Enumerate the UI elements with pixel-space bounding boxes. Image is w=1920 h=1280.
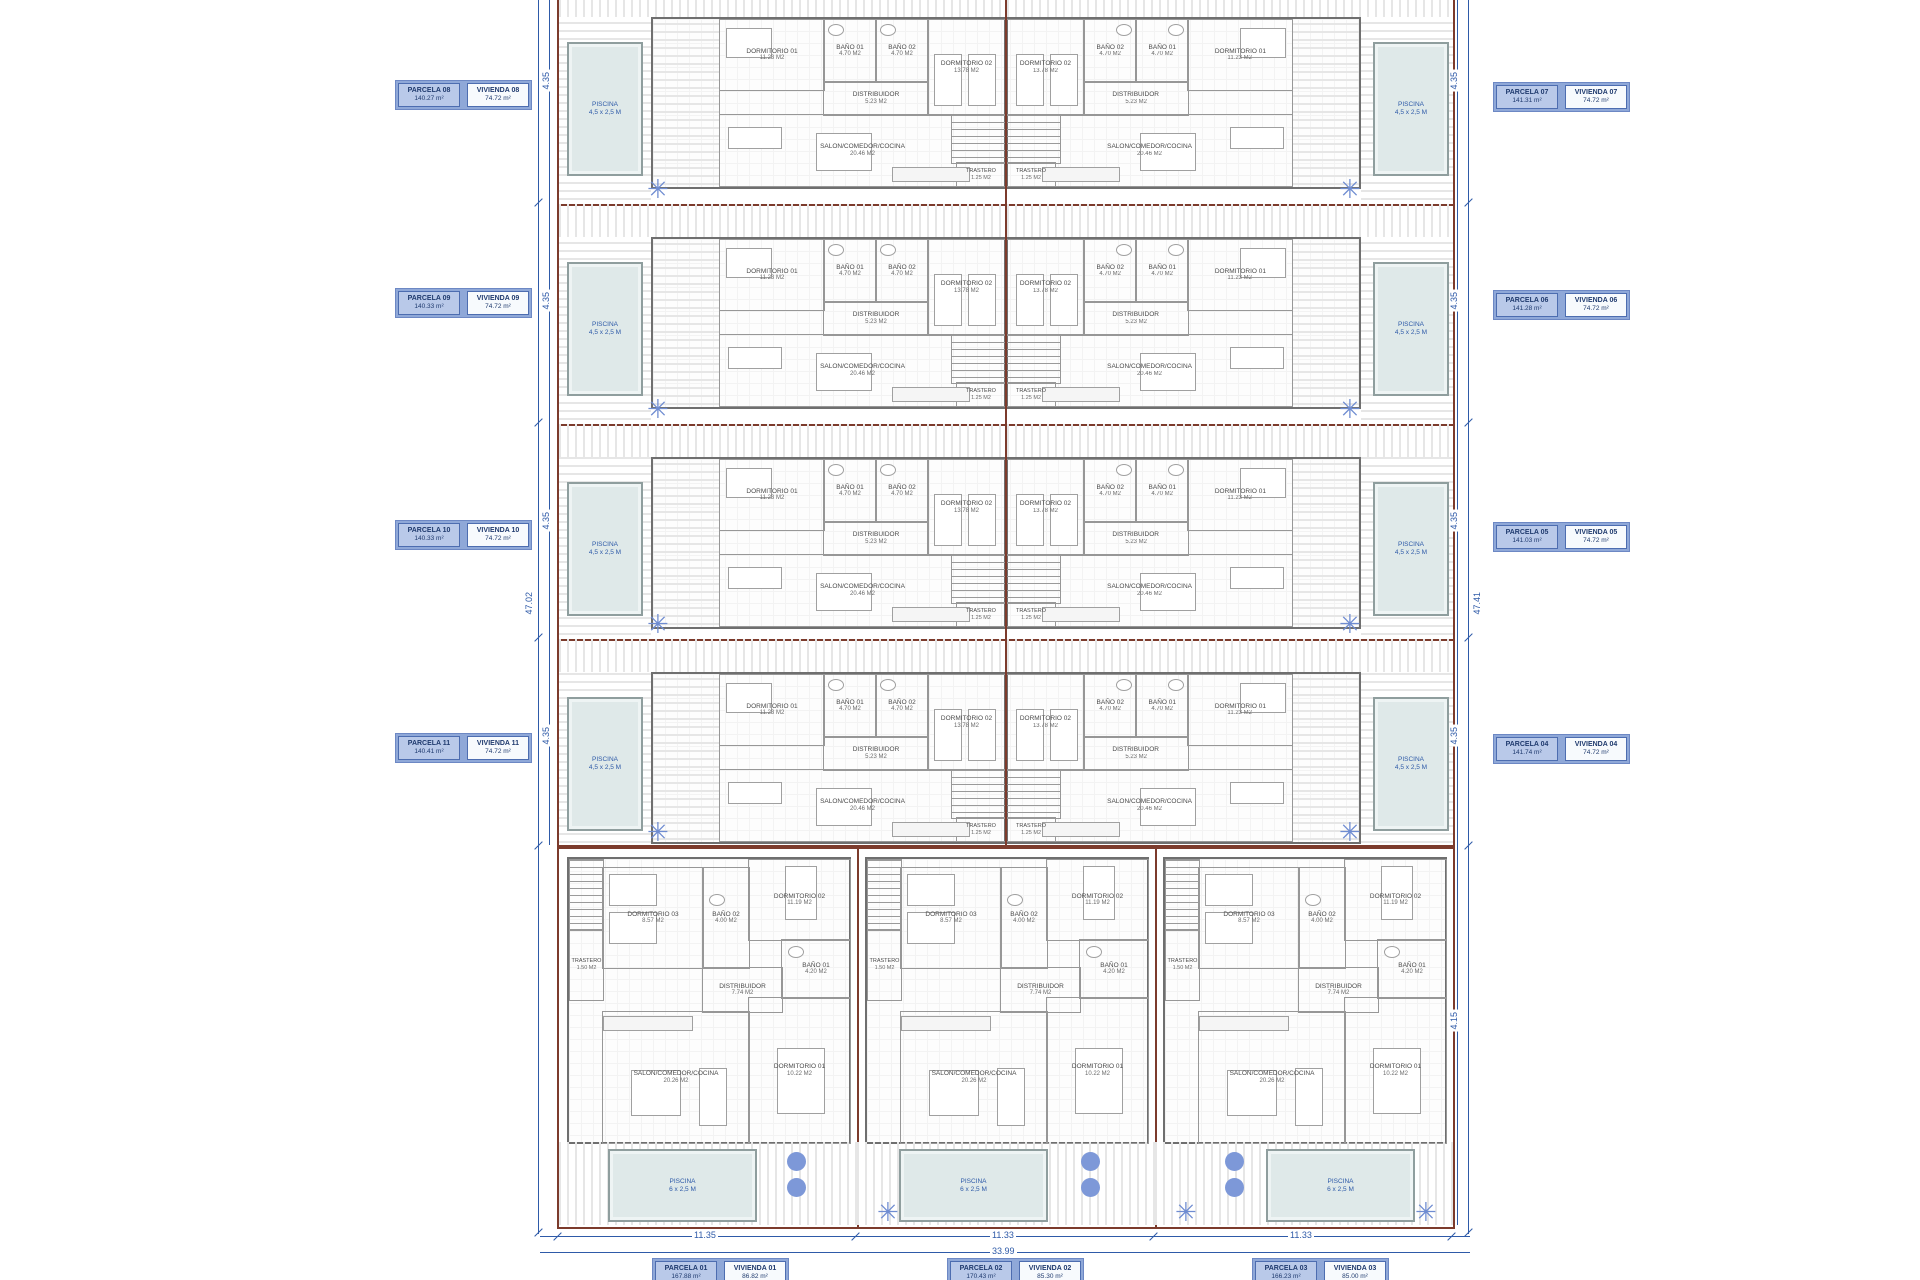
room-area: 4.70 M2 <box>1099 51 1121 58</box>
room-label: BAÑO 01 <box>1148 44 1175 52</box>
room-area: 20.26 M2 <box>663 1078 688 1085</box>
room-trastero: TRASTERO 1.50 M2 <box>569 929 604 1001</box>
room-bano-01: BAÑO 01 4.70 M2 <box>823 19 877 83</box>
room-label: DISTRIBUIDOR <box>853 91 900 99</box>
pool-size-label: 4,5 x 2,5 M <box>1395 329 1427 337</box>
palm-tree-icon: ✳ <box>647 396 669 422</box>
room-area: 20.46 M2 <box>1137 806 1162 813</box>
room-area: 1.25 M2 <box>1021 615 1041 622</box>
parcel-label-pair: PARCELA 04 141.74 m² VIVIENDA 04 74.72 m… <box>1493 734 1630 764</box>
unit-outline: DORMITORIO 01 11.23 M2 BAÑO 01 4.70 M2 B… <box>1006 17 1361 189</box>
room-dormitorio-01: DORMITORIO 01 11.23 M2 <box>719 674 825 746</box>
vivienda-label-box: VIVIENDA 09 74.72 m² <box>467 291 529 315</box>
room-distribuidor: DISTRIBUIDOR 5.23 M2 <box>823 521 929 556</box>
sink-symbol <box>1116 679 1132 691</box>
room-label: TRASTERO <box>1016 823 1046 830</box>
room-label: BAÑO 02 <box>1096 264 1123 272</box>
room-salon-comedor-cocina: SALON/COMEDOR/COCINA 20.26 M2 <box>1198 1011 1346 1144</box>
palm-tree-icon: ✳ <box>647 819 669 845</box>
swimming-pool: PISCINA 4,5 x 2,5 M <box>1373 482 1449 616</box>
sink-symbol <box>709 894 725 906</box>
room-label: DORMITORIO 03 <box>925 911 976 919</box>
room-bano-01: BAÑO 01 4.70 M2 <box>823 674 877 738</box>
room-label: DORMITORIO 02 <box>1020 60 1071 68</box>
vivienda-area: 74.72 m² <box>485 535 511 542</box>
pool-strip-left: PISCINA 4,5 x 2,5 M <box>559 237 651 420</box>
room-area: 11.23 M2 <box>760 710 785 717</box>
vivienda-name: VIVIENDA 01 <box>734 1265 777 1273</box>
room-area: 4.70 M2 <box>1099 706 1121 713</box>
tree-icon <box>1225 1178 1244 1197</box>
room-dormitorio-01: DORMITORIO 01 11.23 M2 <box>1187 239 1293 311</box>
pool-size-label: 4,5 x 2,5 M <box>1395 764 1427 772</box>
room-area: 5.23 M2 <box>1125 99 1147 106</box>
sink-symbol <box>880 464 896 476</box>
room-area: 5.23 M2 <box>865 539 887 546</box>
pool-size-label: 4,5 x 2,5 M <box>589 329 621 337</box>
unit-outline: DORMITORIO 01 11.23 M2 BAÑO 01 4.70 M2 B… <box>651 17 1006 189</box>
pool-label: PISCINA <box>1398 321 1424 329</box>
vivienda-label-box: VIVIENDA 07 74.72 m² <box>1565 85 1627 109</box>
pool-strip-left: PISCINA 4,5 x 2,5 M <box>559 17 651 200</box>
parcela-label-box: PARCELA 11 140.41 m² <box>398 736 460 760</box>
room-area: 13.78 M2 <box>1033 68 1058 75</box>
parcela-label-box: PARCELA 09 140.33 m² <box>398 291 460 315</box>
parcel-label-pair: PARCELA 06 141.28 m² VIVIENDA 06 74.72 m… <box>1493 290 1630 320</box>
room-label: DISTRIBUIDOR <box>1113 746 1160 754</box>
room-dormitorio-03: DORMITORIO 03 8.57 M2 <box>1198 867 1300 969</box>
room-label: BAÑO 01 <box>1100 962 1127 970</box>
palm-tree-icon: ✳ <box>1415 1199 1437 1225</box>
room-label: DISTRIBUIDOR <box>853 746 900 754</box>
room-area: 7.74 M2 <box>1328 990 1350 997</box>
parcela-name: PARCELA 05 <box>1506 529 1549 537</box>
room-distribuidor: DISTRIBUIDOR 5.23 M2 <box>823 81 929 116</box>
room-label: DORMITORIO 02 <box>941 500 992 508</box>
room-salon-comedor-cocina: SALON/COMEDOR/COCINA 20.46 M2 <box>719 769 1006 842</box>
room-area: 11.19 M2 <box>1383 900 1408 907</box>
room-dormitorio-01: DORMITORIO 01 10.22 M2 <box>1344 997 1447 1144</box>
vivienda-area: 85.00 m² <box>1342 1273 1368 1280</box>
room-label: DORMITORIO 01 <box>1370 1063 1421 1071</box>
room-label: BAÑO 02 <box>888 264 915 272</box>
room-label: SALON/COMEDOR/COCINA <box>1230 1070 1315 1078</box>
parcela-label-box: PARCELA 08 140.27 m² <box>398 83 460 107</box>
parcela-area: 141.03 m² <box>1512 537 1541 544</box>
pool-label: PISCINA <box>592 756 618 764</box>
sofa-symbol <box>728 347 782 369</box>
room-label: BAÑO 02 <box>1010 911 1037 919</box>
parcela-label-box: PARCELA 03 166.23 m² <box>1255 1261 1317 1280</box>
room-salon-comedor-cocina: SALON/COMEDOR/COCINA 20.46 M2 <box>719 334 1006 407</box>
dim-row-right-1: 4.35 <box>1449 70 1459 92</box>
porch-terrace <box>1292 19 1359 185</box>
parcel-label-pair: PARCELA 10 140.33 m² VIVIENDA 10 74.72 m… <box>395 520 532 550</box>
room-label: DORMITORIO 02 <box>1072 893 1123 901</box>
parcela-name: PARCELA 10 <box>408 527 451 535</box>
dim-bottom-width-2: 11.33 <box>990 1230 1016 1240</box>
dim-bottom-total: 33.99 <box>990 1246 1017 1256</box>
room-label: DISTRIBUIDOR <box>1113 311 1160 319</box>
kitchen-counter-symbol <box>603 1016 693 1031</box>
room-area: 11.23 M2 <box>1228 710 1253 717</box>
sink-symbol <box>1168 679 1184 691</box>
room-salon-comedor-cocina: SALON/COMEDOR/COCINA 20.46 M2 <box>1006 334 1293 407</box>
room-area: 4.00 M2 <box>1013 918 1035 925</box>
parcel-row: PISCINA 4,5 x 2,5 M PISCINA 4,5 x 2,5 M … <box>559 424 1453 641</box>
swimming-pool: PISCINA 6 x 2,5 M <box>899 1149 1048 1222</box>
room-label: SALON/COMEDOR/COCINA <box>634 1070 719 1078</box>
tree-icon <box>787 1152 806 1171</box>
vivienda-area: 74.72 m² <box>485 748 511 755</box>
villa-outline: TRASTERO 1.50 M2 DORMITORIO 03 8.57 M2 B… <box>1163 857 1447 1144</box>
parcela-area: 141.28 m² <box>1512 305 1541 312</box>
room-area: 7.74 M2 <box>1030 990 1052 997</box>
room-area: 4.70 M2 <box>1099 271 1121 278</box>
unit-outline: DORMITORIO 01 11.23 M2 BAÑO 01 4.70 M2 B… <box>1006 457 1361 629</box>
room-bano-01: BAÑO 01 4.20 M2 <box>1377 939 1447 999</box>
palm-tree-icon: ✳ <box>1339 819 1361 845</box>
vivienda-label-box: VIVIENDA 03 85.00 m² <box>1324 1261 1386 1280</box>
room-label: BAÑO 02 <box>1096 44 1123 52</box>
room-trastero: TRASTERO 1.50 M2 <box>867 929 902 1001</box>
room-label: DISTRIBUIDOR <box>1017 983 1064 991</box>
room-area: 8.57 M2 <box>940 918 962 925</box>
room-dormitorio-02: DORMITORIO 02 11.19 M2 <box>1344 859 1447 941</box>
porch-terrace <box>653 239 720 405</box>
sofa-symbol <box>1230 347 1284 369</box>
parcel-label-pair: PARCELA 02 170.43 m² VIVIENDA 02 85.30 m… <box>947 1258 1084 1280</box>
dwelling-unit: DORMITORIO 01 11.23 M2 BAÑO 01 4.70 M2 B… <box>651 457 1006 629</box>
vivienda-area: 74.72 m² <box>485 303 511 310</box>
room-label: DORMITORIO 01 <box>1214 268 1265 276</box>
room-dormitorio-02: DORMITORIO 02 13.78 M2 <box>927 239 1006 336</box>
room-area: 1.25 M2 <box>971 830 991 837</box>
room-area: 5.23 M2 <box>1125 319 1147 326</box>
bed-symbol <box>1373 1048 1421 1114</box>
sink-symbol <box>828 679 844 691</box>
parcela-name: PARCELA 11 <box>408 740 450 748</box>
sofa-symbol <box>1230 567 1284 589</box>
pool-size-label: 6 x 2,5 M <box>960 1186 987 1194</box>
dim-row-left-1: 4.35 <box>541 70 551 92</box>
vivienda-area: 74.72 m² <box>1583 97 1609 104</box>
room-label: DORMITORIO 01 <box>746 268 797 276</box>
parcela-name: PARCELA 03 <box>1265 1265 1308 1273</box>
bed-symbol <box>1075 1048 1123 1114</box>
room-bano-01: BAÑO 01 4.70 M2 <box>1135 19 1189 83</box>
room-label: BAÑO 02 <box>1308 911 1335 919</box>
room-salon-comedor-cocina: SALON/COMEDOR/COCINA 20.46 M2 <box>1006 554 1293 627</box>
bed-symbol <box>777 1048 825 1114</box>
dwelling-unit: DORMITORIO 01 11.23 M2 BAÑO 01 4.70 M2 B… <box>651 237 1006 409</box>
parcela-label-box: PARCELA 06 141.28 m² <box>1496 293 1558 317</box>
room-area: 1.25 M2 <box>1021 395 1041 402</box>
room-label: TRASTERO <box>572 958 602 965</box>
unit-slot-left: DORMITORIO 01 11.23 M2 BAÑO 01 4.70 M2 B… <box>651 457 1006 629</box>
room-area: 5.23 M2 <box>865 99 887 106</box>
room-area: 11.23 M2 <box>760 495 785 502</box>
room-bano-02: BAÑO 02 4.70 M2 <box>875 239 929 303</box>
room-area: 10.22 M2 <box>1383 1071 1408 1078</box>
room-area: 1.25 M2 <box>971 615 991 622</box>
unit-outline: DORMITORIO 01 11.23 M2 BAÑO 01 4.70 M2 B… <box>1006 237 1361 409</box>
swimming-pool: PISCINA 4,5 x 2,5 M <box>1373 697 1449 831</box>
room-area: 4.20 M2 <box>1401 969 1423 976</box>
room-area: 4.00 M2 <box>715 918 737 925</box>
room-area: 11.19 M2 <box>1085 900 1110 907</box>
room-label: SALON/COMEDOR/COCINA <box>1107 798 1192 806</box>
pool-strip-left: PISCINA 4,5 x 2,5 M <box>559 672 651 843</box>
room-bano-01: BAÑO 01 4.70 M2 <box>1135 459 1189 523</box>
room-area: 5.23 M2 <box>1125 754 1147 761</box>
center-parcel-line <box>1005 0 1007 204</box>
swimming-pool: PISCINA 6 x 2,5 M <box>1266 1149 1415 1222</box>
room-bano-01: BAÑO 01 4.70 M2 <box>823 459 877 523</box>
room-dormitorio-01: DORMITORIO 01 10.22 M2 <box>748 997 851 1144</box>
pool-size-label: 4,5 x 2,5 M <box>1395 109 1427 117</box>
room-area: 4.20 M2 <box>1103 969 1125 976</box>
room-area: 1.25 M2 <box>971 175 991 182</box>
pool-strip-right: PISCINA 4,5 x 2,5 M <box>1361 457 1453 635</box>
parcela-label-box: PARCELA 04 141.74 m² <box>1496 737 1558 761</box>
room-label: BAÑO 02 <box>1096 699 1123 707</box>
site-plan-canvas: PISCINA 4,5 x 2,5 M PISCINA 4,5 x 2,5 M … <box>0 0 1920 1280</box>
palm-tree-icon: ✳ <box>877 1199 899 1225</box>
porch-terrace <box>653 674 720 840</box>
tree-icon <box>1081 1178 1100 1197</box>
room-area: 10.22 M2 <box>1085 1071 1110 1078</box>
room-area: 13.78 M2 <box>954 288 979 295</box>
room-dormitorio-02: DORMITORIO 02 13.78 M2 <box>1006 19 1085 116</box>
kitchen-counter-symbol <box>892 167 970 182</box>
room-area: 1.25 M2 <box>971 395 991 402</box>
room-label: BAÑO 01 <box>836 484 863 492</box>
dim-rail-right-outer <box>1468 0 1469 1234</box>
room-area: 20.46 M2 <box>1137 151 1162 158</box>
room-label: DISTRIBUIDOR <box>1113 531 1160 539</box>
room-bano-02: BAÑO 02 4.00 M2 <box>1298 867 1346 969</box>
room-area: 20.46 M2 <box>1137 591 1162 598</box>
sink-symbol <box>1116 24 1132 36</box>
room-label: TRASTERO <box>1016 608 1046 615</box>
unit-slot-right: DORMITORIO 01 11.23 M2 BAÑO 01 4.70 M2 B… <box>1006 17 1361 189</box>
kitchen-counter-symbol <box>1042 387 1120 402</box>
pool-size-label: 4,5 x 2,5 M <box>589 549 621 557</box>
room-label: SALON/COMEDOR/COCINA <box>1107 143 1192 151</box>
room-bano-02: BAÑO 02 4.70 M2 <box>1083 674 1137 738</box>
center-parcel-line <box>1005 204 1007 424</box>
room-label: BAÑO 02 <box>888 699 915 707</box>
room-dormitorio-01: DORMITORIO 01 11.23 M2 <box>719 19 825 91</box>
kitchen-counter-symbol <box>901 1016 991 1031</box>
swimming-pool: PISCINA 4,5 x 2,5 M <box>1373 42 1449 176</box>
room-label: TRASTERO <box>966 388 996 395</box>
room-area: 4.70 M2 <box>839 271 861 278</box>
room-label: TRASTERO <box>870 958 900 965</box>
room-label: SALON/COMEDOR/COCINA <box>820 363 905 371</box>
unit-slot-right: DORMITORIO 01 11.23 M2 BAÑO 01 4.70 M2 B… <box>1006 672 1361 844</box>
room-label: TRASTERO <box>966 823 996 830</box>
villa-parcel: TRASTERO 1.50 M2 DORMITORIO 03 8.57 M2 B… <box>1155 847 1453 1227</box>
room-area: 13.78 M2 <box>954 723 979 730</box>
sink-symbol <box>1384 946 1400 958</box>
sink-symbol <box>828 244 844 256</box>
room-dormitorio-02: DORMITORIO 02 13.78 M2 <box>927 19 1006 116</box>
room-dormitorio-02: DORMITORIO 02 13.78 M2 <box>1006 239 1085 336</box>
unit-slot-left: DORMITORIO 01 11.23 M2 BAÑO 01 4.70 M2 B… <box>651 17 1006 189</box>
room-label: BAÑO 01 <box>802 962 829 970</box>
parcela-name: PARCELA 07 <box>1506 89 1549 97</box>
room-label: BAÑO 01 <box>836 44 863 52</box>
sofa-symbol <box>1230 127 1284 149</box>
swimming-pool: PISCINA 4,5 x 2,5 M <box>567 697 643 831</box>
parcela-area: 141.31 m² <box>1512 97 1541 104</box>
sink-symbol <box>880 679 896 691</box>
room-area: 20.26 M2 <box>961 1078 986 1085</box>
room-label: TRASTERO <box>966 608 996 615</box>
vivienda-area: 74.72 m² <box>1583 749 1609 756</box>
parcela-area: 140.33 m² <box>414 303 443 310</box>
parcela-label-box: PARCELA 02 170.43 m² <box>950 1261 1012 1280</box>
room-area: 4.70 M2 <box>891 491 913 498</box>
room-area: 20.46 M2 <box>850 151 875 158</box>
pool-label: PISCINA <box>1398 101 1424 109</box>
room-label: DISTRIBUIDOR <box>1315 983 1362 991</box>
room-area: 11.19 M2 <box>787 900 812 907</box>
vivienda-area: 74.72 m² <box>1583 305 1609 312</box>
room-area: 8.57 M2 <box>642 918 664 925</box>
parcel-row: PISCINA 4,5 x 2,5 M PISCINA 4,5 x 2,5 M … <box>559 0 1453 206</box>
room-label: DORMITORIO 01 <box>746 488 797 496</box>
room-area: 4.70 M2 <box>1099 491 1121 498</box>
kitchen-counter-symbol <box>1042 167 1120 182</box>
room-area: 20.46 M2 <box>850 591 875 598</box>
room-area: 11.23 M2 <box>1228 275 1253 282</box>
vivienda-name: VIVIENDA 07 <box>1575 89 1618 97</box>
vivienda-label-box: VIVIENDA 05 74.72 m² <box>1565 525 1627 549</box>
sink-symbol <box>1168 244 1184 256</box>
parcel-label-pair: PARCELA 03 166.23 m² VIVIENDA 03 85.00 m… <box>1252 1258 1389 1280</box>
room-bano-01: BAÑO 01 4.20 M2 <box>781 939 851 999</box>
sink-symbol <box>828 464 844 476</box>
room-label: DORMITORIO 01 <box>1214 703 1265 711</box>
room-bano-02: BAÑO 02 4.70 M2 <box>1083 459 1137 523</box>
room-area: 20.46 M2 <box>1137 371 1162 378</box>
room-label: SALON/COMEDOR/COCINA <box>820 583 905 591</box>
dim-rail-left-inner <box>549 0 550 845</box>
room-dormitorio-02: DORMITORIO 02 11.19 M2 <box>748 859 851 941</box>
sink-symbol <box>828 24 844 36</box>
kitchen-counter-symbol <box>892 387 970 402</box>
room-dormitorio-01: DORMITORIO 01 11.23 M2 <box>719 459 825 531</box>
dwelling-unit: DORMITORIO 01 11.23 M2 BAÑO 01 4.70 M2 B… <box>651 672 1006 844</box>
parcela-area: 166.23 m² <box>1271 1273 1300 1280</box>
room-area: 1.50 M2 <box>1173 965 1193 972</box>
porch-terrace <box>653 19 720 185</box>
parcel-label-pair: PARCELA 07 141.31 m² VIVIENDA 07 74.72 m… <box>1493 82 1630 112</box>
parcel-label-pair: PARCELA 01 167.88 m² VIVIENDA 01 86.82 m… <box>652 1258 789 1280</box>
tree-icon <box>787 1178 806 1197</box>
room-label: SALON/COMEDOR/COCINA <box>820 798 905 806</box>
dim-row-right-3: 4.35 <box>1449 510 1459 532</box>
sink-symbol <box>1168 24 1184 36</box>
bed-symbol <box>609 874 657 906</box>
sink-symbol <box>1007 894 1023 906</box>
room-label: DORMITORIO 01 <box>774 1063 825 1071</box>
room-label: DISTRIBUIDOR <box>719 983 766 991</box>
kitchen-counter-symbol <box>1042 822 1120 837</box>
room-area: 4.70 M2 <box>839 706 861 713</box>
room-bano-02: BAÑO 02 4.70 M2 <box>875 459 929 523</box>
room-label: DORMITORIO 01 <box>1214 48 1265 56</box>
dwelling-unit: DORMITORIO 01 11.23 M2 BAÑO 01 4.70 M2 B… <box>1006 457 1361 629</box>
unit-slot-right: DORMITORIO 01 11.23 M2 BAÑO 01 4.70 M2 B… <box>1006 457 1361 629</box>
vivienda-label-box: VIVIENDA 02 85.30 m² <box>1019 1261 1081 1280</box>
dwelling-unit: DORMITORIO 01 11.23 M2 BAÑO 01 4.70 M2 B… <box>1006 672 1361 844</box>
room-label: DORMITORIO 02 <box>774 893 825 901</box>
room-distribuidor: DISTRIBUIDOR 5.23 M2 <box>1083 521 1189 556</box>
room-area: 1.50 M2 <box>577 965 597 972</box>
room-label: BAÑO 01 <box>1148 484 1175 492</box>
room-area: 13.78 M2 <box>954 68 979 75</box>
room-bano-01: BAÑO 01 4.70 M2 <box>823 239 877 303</box>
room-label: TRASTERO <box>1016 168 1046 175</box>
tree-icon <box>1225 1152 1244 1171</box>
room-label: TRASTERO <box>1016 388 1046 395</box>
pool-label: PISCINA <box>592 101 618 109</box>
vivienda-area: 74.72 m² <box>485 95 511 102</box>
room-label: SALON/COMEDOR/COCINA <box>1107 363 1192 371</box>
room-label: TRASTERO <box>966 168 996 175</box>
parcel-label-pair: PARCELA 11 140.41 m² VIVIENDA 11 74.72 m… <box>395 733 532 763</box>
dim-row-left-4: 4.35 <box>541 725 551 747</box>
sink-symbol <box>1168 464 1184 476</box>
tree-icon <box>1081 1152 1100 1171</box>
room-bano-01: BAÑO 01 4.20 M2 <box>1079 939 1149 999</box>
unit-slot-right: DORMITORIO 01 11.23 M2 BAÑO 01 4.70 M2 B… <box>1006 237 1361 409</box>
parcel-row: PISCINA 4,5 x 2,5 M PISCINA 4,5 x 2,5 M … <box>559 639 1453 847</box>
palm-tree-icon: ✳ <box>1339 396 1361 422</box>
pool-strip-right: PISCINA 4,5 x 2,5 M <box>1361 17 1453 200</box>
pool-size-label: 6 x 2,5 M <box>669 1186 696 1194</box>
upper-block: PISCINA 4,5 x 2,5 M PISCINA 4,5 x 2,5 M … <box>557 0 1455 849</box>
room-label: SALON/COMEDOR/COCINA <box>820 143 905 151</box>
vivienda-label-box: VIVIENDA 06 74.72 m² <box>1565 293 1627 317</box>
sink-symbol <box>1116 464 1132 476</box>
porch-terrace <box>653 459 720 625</box>
room-dormitorio-01: DORMITORIO 01 11.23 M2 <box>1187 19 1293 91</box>
vivienda-name: VIVIENDA 08 <box>477 87 520 95</box>
vivienda-label-box: VIVIENDA 01 86.82 m² <box>724 1261 786 1280</box>
dim-row-right-2: 4.35 <box>1449 290 1459 312</box>
unit-slot-left: DORMITORIO 01 11.23 M2 BAÑO 01 4.70 M2 B… <box>651 672 1006 844</box>
parcela-area: 170.43 m² <box>966 1273 995 1280</box>
room-area: 4.70 M2 <box>1151 491 1173 498</box>
room-bano-01: BAÑO 01 4.70 M2 <box>1135 239 1189 303</box>
unit-outline: DORMITORIO 01 11.23 M2 BAÑO 01 4.70 M2 B… <box>651 457 1006 629</box>
room-label: BAÑO 02 <box>888 484 915 492</box>
parcel-label-pair: PARCELA 05 141.03 m² VIVIENDA 05 74.72 m… <box>1493 522 1630 552</box>
room-area: 4.70 M2 <box>1151 706 1173 713</box>
room-area: 7.74 M2 <box>732 990 754 997</box>
bed-symbol <box>1205 874 1253 906</box>
pool-label: PISCINA <box>960 1178 986 1186</box>
parcela-label-box: PARCELA 07 141.31 m² <box>1496 85 1558 109</box>
dim-total-right: 47.41 <box>1472 590 1482 617</box>
dim-total-left: 47.02 <box>524 590 534 617</box>
parcela-name: PARCELA 02 <box>960 1265 1003 1273</box>
